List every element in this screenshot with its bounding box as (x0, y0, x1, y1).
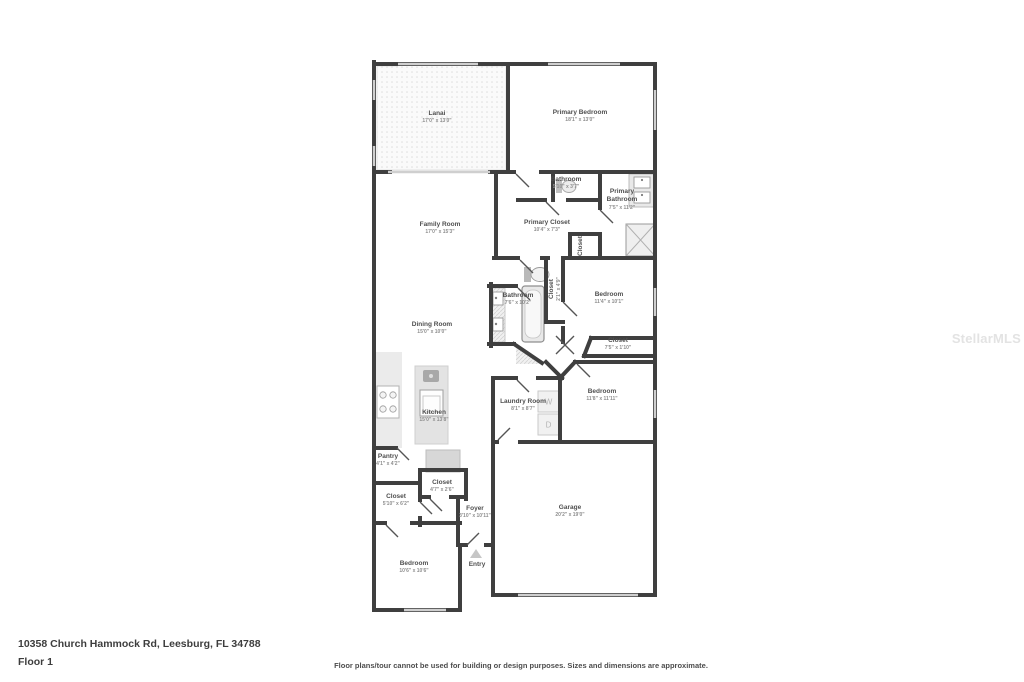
floorplan-drawing: W D (0, 0, 1024, 682)
small-bath-toilet-tank (556, 180, 562, 193)
mls-watermark: StellarMLS (952, 331, 1021, 346)
fixtures-layer: W D (376, 174, 655, 558)
property-address: 10358 Church Hammock Rd, Leesburg, FL 34… (18, 638, 261, 650)
washer-label: W (545, 398, 553, 407)
small-bath-toilet-bowl (562, 181, 576, 193)
floorplan-page: W D (0, 0, 1024, 682)
floor-label: Floor 1 (18, 656, 53, 668)
range-cooktop (377, 386, 399, 418)
lanai-floor-texture (377, 66, 506, 170)
disclaimer-text: Floor plans/tour cannot be used for buil… (334, 661, 708, 670)
entry-arrow-icon (470, 549, 482, 558)
dryer-label: D (546, 421, 552, 430)
